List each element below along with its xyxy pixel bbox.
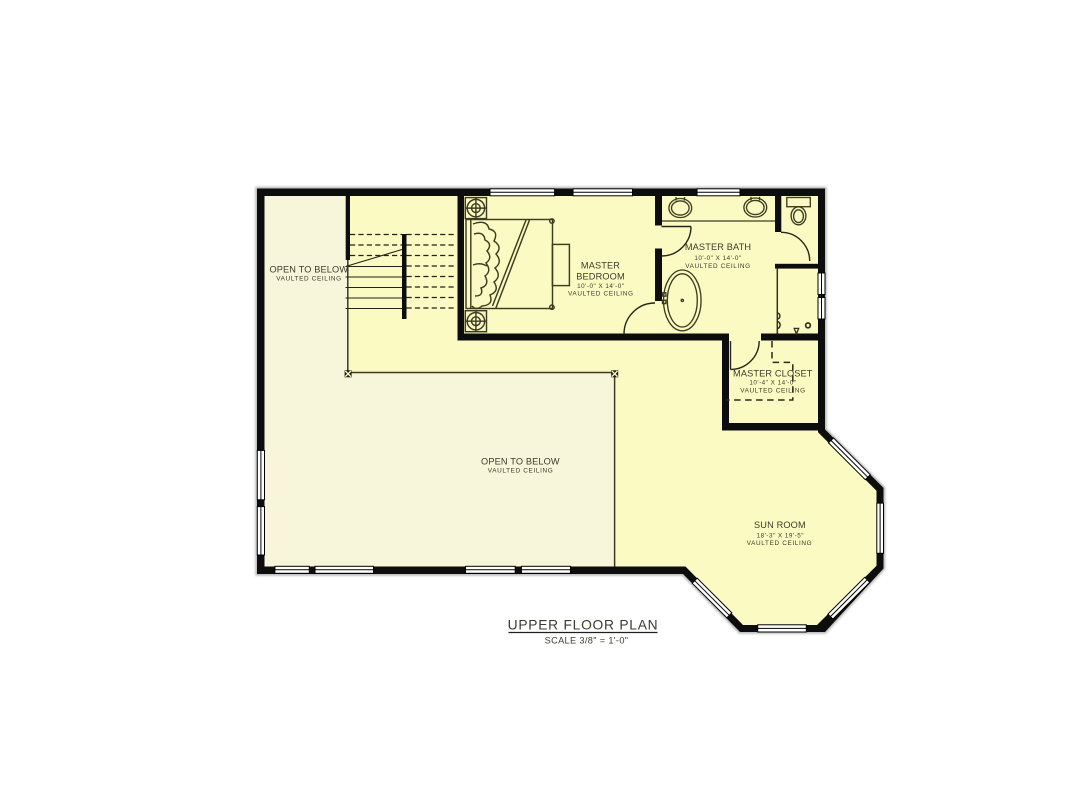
svg-text:SCALE 3/8" = 1'-0": SCALE 3/8" = 1'-0" xyxy=(545,636,629,646)
svg-text:MASTER BATH: MASTER BATH xyxy=(685,242,751,252)
svg-text:VAULTED CEILING: VAULTED CEILING xyxy=(276,275,342,282)
svg-text:VAULTED CEILING: VAULTED CEILING xyxy=(740,388,806,395)
svg-text:VAULTED CEILING: VAULTED CEILING xyxy=(747,540,813,547)
svg-text:VAULTED CEILING: VAULTED CEILING xyxy=(568,291,634,298)
svg-text:UPPER FLOOR PLAN: UPPER FLOOR PLAN xyxy=(508,618,659,633)
svg-text:SUN ROOM: SUN ROOM xyxy=(754,520,806,530)
svg-text:OPEN TO BELOW: OPEN TO BELOW xyxy=(481,456,560,466)
svg-text:10'-0" X 14'-0": 10'-0" X 14'-0" xyxy=(577,283,624,290)
svg-text:OPEN TO BELOW: OPEN TO BELOW xyxy=(269,264,348,274)
svg-text:18'-3" X 19'-5": 18'-3" X 19'-5" xyxy=(757,532,804,539)
svg-text:MASTER CLOSET: MASTER CLOSET xyxy=(733,369,813,379)
svg-text:10'-4" X 14'-0": 10'-4" X 14'-0" xyxy=(749,380,796,387)
svg-text:VAULTED CEILING: VAULTED CEILING xyxy=(488,467,554,474)
svg-text:MASTER: MASTER xyxy=(581,260,620,270)
svg-text:10'-0" X 14'-0": 10'-0" X 14'-0" xyxy=(694,255,741,262)
svg-text:BEDROOM: BEDROOM xyxy=(576,271,625,281)
svg-text:VAULTED CEILING: VAULTED CEILING xyxy=(685,263,751,270)
